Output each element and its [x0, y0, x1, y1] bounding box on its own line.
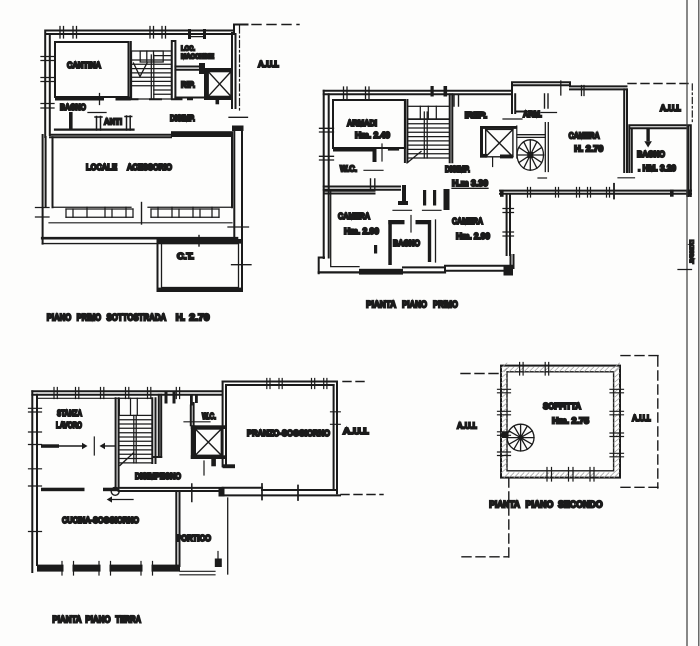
svg-text:DISIMPEGNO: DISIMPEGNO: [135, 471, 181, 481]
svg-text:SOTTOSTRADA: SOTTOSTRADA: [107, 313, 167, 324]
svg-text:A.U.I.: A.U.I.: [457, 421, 477, 431]
svg-text:RIP.: RIP.: [465, 110, 487, 120]
svg-text:LOC.: LOC.: [181, 46, 195, 53]
svg-text:H. 2.70: H. 2.70: [574, 144, 603, 154]
svg-text:BAGNO: BAGNO: [60, 102, 86, 112]
svg-text:PIANO: PIANO: [526, 500, 554, 511]
svg-text:BAGNO: BAGNO: [393, 238, 420, 248]
svg-text:Hm. 2.75: Hm. 2.75: [552, 416, 589, 426]
svg-text:H.m 3.30: H.m 3.30: [452, 178, 488, 188]
svg-text:BAGNO: BAGNO: [637, 149, 665, 159]
svg-text:PORTICO: PORTICO: [176, 533, 211, 543]
svg-text:ANTI: ANTI: [104, 117, 122, 127]
svg-text:LOCALE: LOCALE: [86, 162, 117, 172]
svg-text:TERRA: TERRA: [115, 615, 141, 626]
svg-text:DISIMP.: DISIMP.: [170, 113, 195, 123]
svg-text:A.U.I.: A.U.I.: [343, 426, 369, 436]
svg-text:ARM.: ARM.: [523, 109, 542, 119]
svg-text:A.U.I.: A.U.I.: [632, 413, 651, 423]
svg-text:PIANTA: PIANTA: [366, 300, 396, 311]
svg-text:W.C.: W.C.: [202, 411, 216, 421]
svg-text:Hm. 2.90: Hm. 2.90: [344, 226, 379, 236]
svg-text:PIANO: PIANO: [47, 313, 72, 324]
svg-text:RIP.: RIP.: [181, 80, 195, 90]
svg-text:W.C.: W.C.: [340, 164, 357, 174]
svg-text:CUCINA-SOGGIORNO: CUCINA-SOGGIORNO: [62, 515, 139, 525]
svg-text:CAMERA: CAMERA: [569, 131, 601, 141]
svg-text:SECONDO: SECONDO: [558, 500, 603, 511]
svg-text:CAMERA: CAMERA: [452, 216, 484, 226]
svg-text:CAMERA: CAMERA: [338, 211, 371, 221]
svg-text:LAVORO: LAVORO: [56, 420, 82, 430]
svg-text:PIANO: PIANO: [85, 615, 111, 626]
svg-text:ACESSORIO: ACESSORIO: [127, 162, 172, 172]
svg-text:LV.BIGAT: LV.BIGAT: [688, 240, 694, 264]
svg-text:MACCHINE: MACCHINE: [181, 54, 214, 61]
svg-text:PIANTA: PIANTA: [52, 615, 81, 626]
svg-text:. HM. 3.20: . HM. 3.20: [638, 163, 676, 173]
svg-text:ARMADI: ARMADI: [347, 118, 377, 128]
svg-text:PRIMO: PRIMO: [433, 300, 458, 311]
svg-text:A.U.I.: A.U.I.: [660, 103, 681, 113]
svg-text:H.: H.: [176, 313, 186, 324]
svg-text:SOFFITTA: SOFFITTA: [543, 401, 582, 411]
svg-text:PRIMO: PRIMO: [77, 313, 102, 324]
svg-text:DISIMP.: DISIMP.: [445, 164, 470, 174]
svg-text:PIANO: PIANO: [402, 300, 427, 311]
svg-text:2.70: 2.70: [189, 313, 209, 324]
svg-text:PIANTA: PIANTA: [489, 500, 520, 511]
svg-text:A.U.I.: A.U.I.: [258, 59, 279, 69]
svg-text:Hm. 2.90: Hm. 2.90: [456, 231, 490, 241]
svg-text:CANTINA: CANTINA: [67, 60, 102, 70]
svg-text:C.T.: C.T.: [177, 251, 194, 261]
svg-text:Hm. 2.40: Hm. 2.40: [355, 130, 390, 140]
svg-text:STANZA: STANZA: [57, 408, 83, 418]
svg-text:PRANZO-SOGGIORNO: PRANZO-SOGGIORNO: [247, 428, 330, 438]
